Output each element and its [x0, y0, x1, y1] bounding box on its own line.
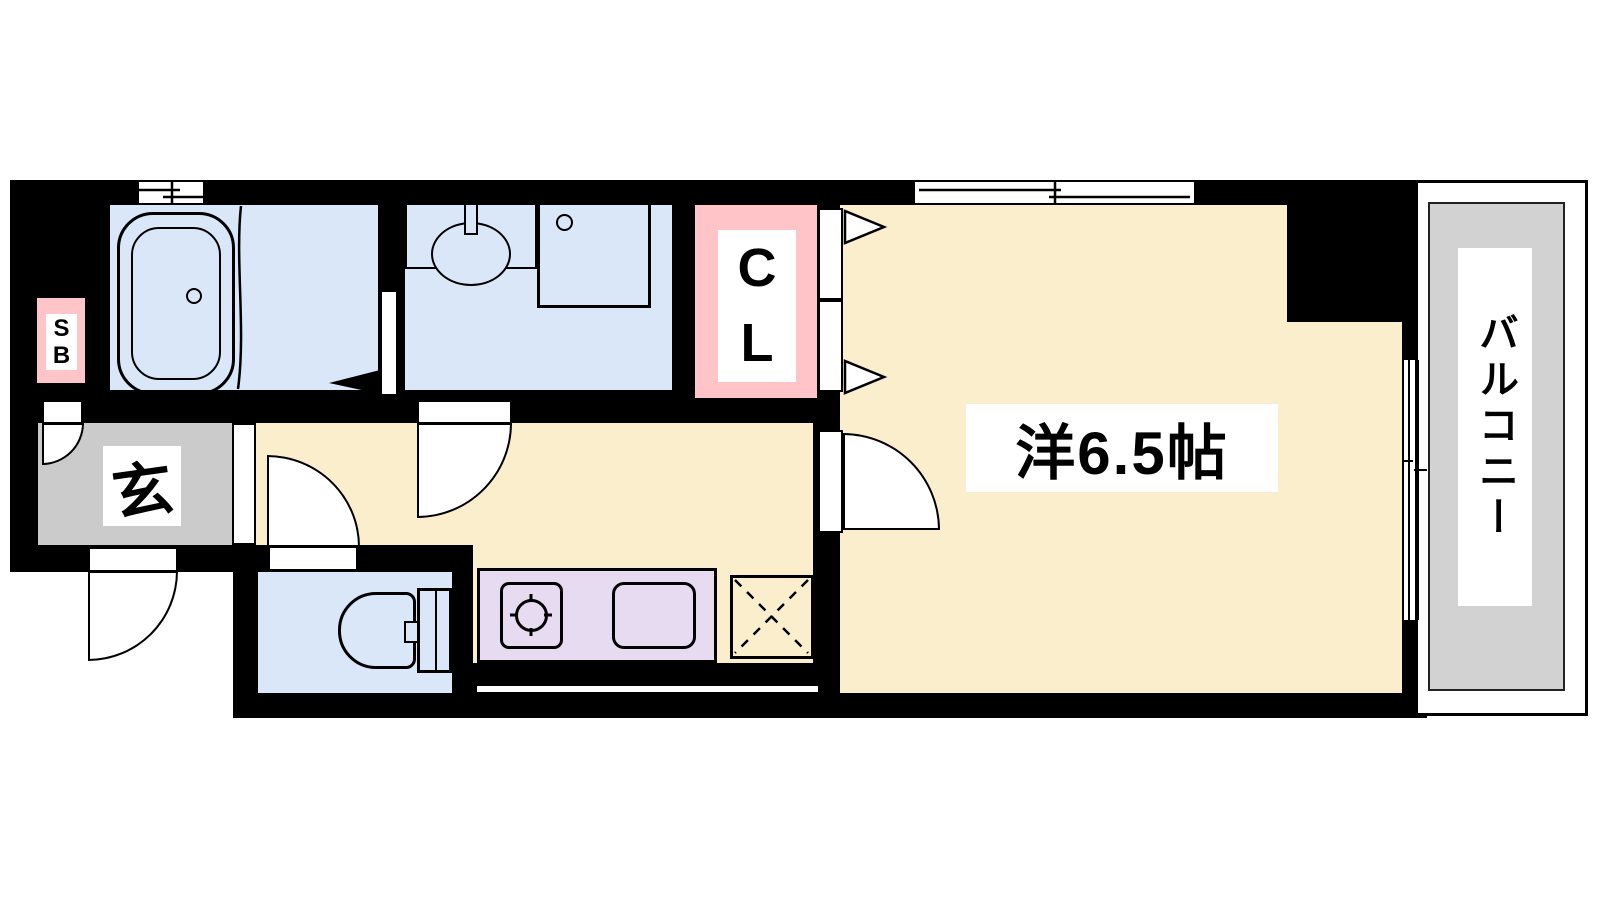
- balcony-label: バルコニー: [1458, 248, 1532, 606]
- entrance-door-opening: [88, 547, 178, 572]
- shoebox-door-leaf: [42, 400, 83, 424]
- kitchen-sink-icon: [612, 582, 696, 649]
- stove-burner-icon: [515, 599, 548, 632]
- bathtub-drain-icon: [186, 288, 202, 304]
- kitchen-vent-slit: [477, 686, 818, 692]
- entrance-label: 玄: [103, 446, 181, 526]
- washing-machine-tap-icon: [556, 214, 573, 231]
- entrance-step: [232, 423, 256, 545]
- shoebox-label-line1: S: [53, 315, 69, 342]
- western-room-floor-upper: [840, 205, 1287, 322]
- western-room-label-text: 洋6.5帖: [1015, 405, 1228, 492]
- bathroom-door-panel: [380, 290, 398, 396]
- washroom-door-opening: [417, 400, 512, 424]
- closet-door-panel-bottom: [818, 300, 843, 392]
- toilet-button-icon: [404, 621, 419, 643]
- western-room-label: 洋6.5帖: [966, 404, 1278, 492]
- bathtub-inner: [131, 227, 221, 380]
- toilet-tank-icon: [417, 588, 452, 673]
- main-sliding-window: [913, 180, 1196, 205]
- shoebox-label: S B: [46, 314, 77, 370]
- floor-plan: S B 玄 C L 洋6.5帖 バルコニー: [0, 0, 1600, 900]
- refrigerator-space-icon: [730, 575, 814, 659]
- room-door-leaf: [818, 430, 843, 533]
- bathroom-window: [137, 180, 205, 205]
- shoebox-label-line2: B: [53, 342, 70, 369]
- entrance-label-text: 玄: [106, 439, 178, 534]
- washing-machine-pan-icon: [537, 205, 651, 308]
- vanity-faucet-icon: [464, 205, 478, 235]
- closet-label-line1: C: [738, 231, 777, 306]
- balcony-label-text: バルコニー: [1466, 312, 1524, 542]
- closet-door-panel-top: [818, 208, 843, 300]
- toilet-door-opening: [268, 546, 358, 571]
- closet-label: C L: [718, 230, 796, 382]
- closet-label-line2: L: [741, 306, 774, 381]
